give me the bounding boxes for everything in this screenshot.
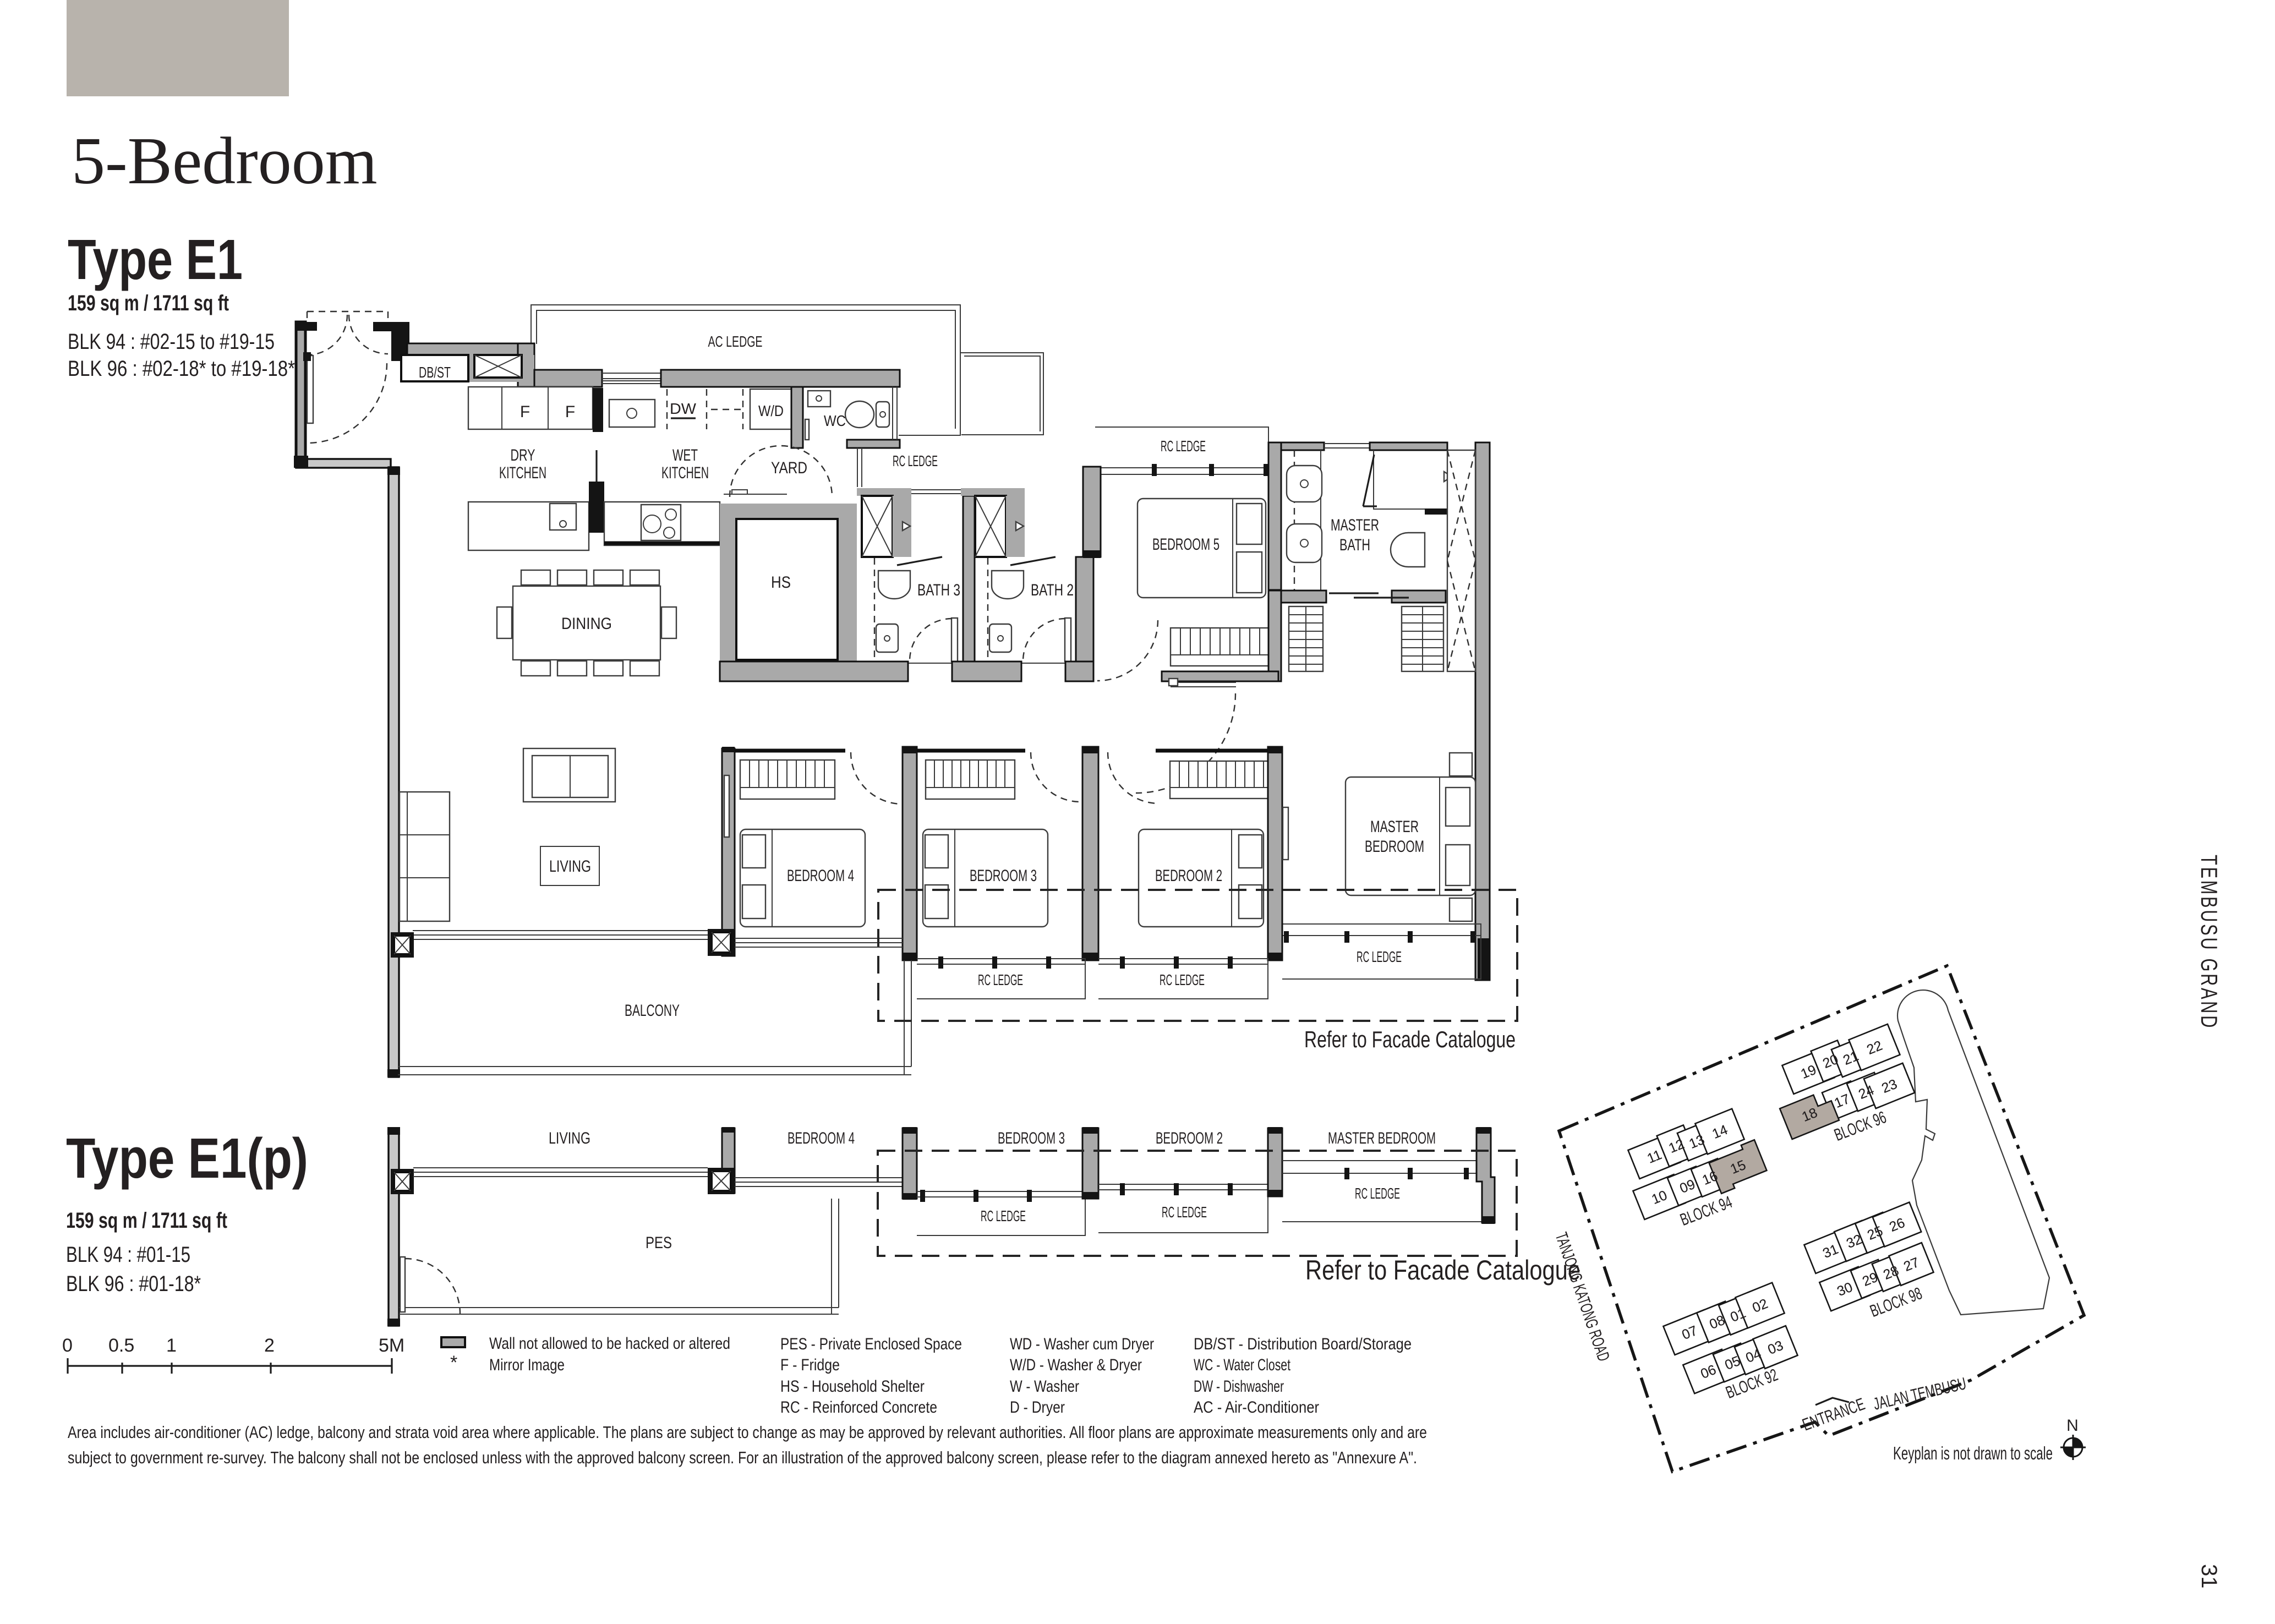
svg-text:RC LEDGE: RC LEDGE: [1160, 971, 1205, 988]
svg-text:MASTER: MASTER: [1331, 516, 1379, 534]
svg-text:BEDROOM: BEDROOM: [1365, 838, 1424, 856]
svg-text:subject to government re-surve: subject to government re-survey. The bal…: [68, 1448, 1417, 1467]
svg-text:AC - Air-Conditioner: AC - Air-Conditioner: [1194, 1398, 1319, 1417]
svg-text:WD - Washer cum Dryer: WD - Washer cum Dryer: [1010, 1335, 1154, 1353]
svg-text:JALAN TEMBUSU: JALAN TEMBUSU: [1872, 1374, 1968, 1414]
svg-text:F - Fridge: F - Fridge: [780, 1356, 840, 1374]
svg-text:31: 31: [2197, 1564, 2221, 1589]
svg-text:1: 1: [166, 1335, 177, 1356]
svg-text:0.5: 0.5: [108, 1335, 134, 1356]
svg-text:159 sq m / 1711 sq ft: 159 sq m / 1711 sq ft: [68, 291, 229, 315]
svg-text:DRY: DRY: [511, 446, 535, 464]
svg-text:Wall not allowed to be hacked: Wall not allowed to be hacked or altered: [489, 1335, 730, 1353]
svg-text:AC LEDGE: AC LEDGE: [708, 333, 763, 350]
svg-text:ENTRANCE: ENTRANCE: [1800, 1394, 1867, 1434]
svg-text:2: 2: [264, 1335, 275, 1356]
svg-text:HS: HS: [771, 573, 791, 592]
svg-text:DB/ST - Distribution Board/Sto: DB/ST - Distribution Board/Storage: [1194, 1335, 1412, 1353]
svg-text:LIVING: LIVING: [549, 1129, 590, 1147]
svg-text:N: N: [2066, 1417, 2079, 1435]
svg-text:BEDROOM 4: BEDROOM 4: [787, 1129, 855, 1147]
svg-text:MASTER: MASTER: [1370, 818, 1419, 836]
svg-text:RC LEDGE: RC LEDGE: [1161, 438, 1206, 455]
svg-text:RC LEDGE: RC LEDGE: [893, 452, 938, 469]
svg-text:KITCHEN: KITCHEN: [499, 464, 546, 482]
svg-text:BLK 96 : #01-18*: BLK 96 : #01-18*: [66, 1272, 201, 1296]
svg-text:HS - Household Shelter: HS - Household Shelter: [780, 1377, 925, 1396]
svg-text:W/D - Washer & Dryer: W/D - Washer & Dryer: [1010, 1356, 1142, 1374]
svg-text:RC - Reinforced Concrete: RC - Reinforced Concrete: [780, 1398, 937, 1417]
svg-text:BLK 94 : #02-15 to #19-15: BLK 94 : #02-15 to #19-15: [68, 330, 275, 354]
svg-text:BATH: BATH: [1339, 536, 1370, 554]
svg-text:BLK 94 : #01-15: BLK 94 : #01-15: [66, 1243, 190, 1267]
svg-text:DINING: DINING: [561, 615, 612, 633]
svg-text:BEDROOM 2: BEDROOM 2: [1156, 1129, 1223, 1147]
svg-text:RC LEDGE: RC LEDGE: [981, 1207, 1026, 1224]
svg-text:YARD: YARD: [771, 459, 807, 477]
svg-text:BATH 2: BATH 2: [1031, 581, 1074, 599]
svg-text:Mirror Image: Mirror Image: [489, 1356, 565, 1374]
svg-text:W - Washer: W - Washer: [1010, 1377, 1079, 1396]
svg-text:F: F: [520, 403, 530, 421]
svg-text:WET: WET: [672, 446, 698, 464]
svg-text:BALCONY: BALCONY: [625, 1002, 680, 1020]
svg-text:BEDROOM 4: BEDROOM 4: [787, 867, 854, 885]
svg-text:BATH 3: BATH 3: [917, 581, 960, 599]
svg-text:DW - Dishwasher: DW - Dishwasher: [1194, 1377, 1284, 1396]
svg-text:LIVING: LIVING: [549, 857, 591, 876]
svg-text:MASTER BEDROOM: MASTER BEDROOM: [1328, 1129, 1436, 1147]
svg-text:DW: DW: [670, 400, 697, 417]
svg-text:PES - Private Enclosed Space: PES - Private Enclosed Space: [780, 1335, 962, 1353]
svg-text:0: 0: [62, 1335, 73, 1356]
svg-text:BEDROOM 3: BEDROOM 3: [970, 867, 1037, 885]
svg-text:W/D: W/D: [758, 402, 784, 419]
svg-text:KITCHEN: KITCHEN: [661, 464, 709, 482]
svg-text:RC LEDGE: RC LEDGE: [1357, 948, 1402, 965]
svg-text:D - Dryer: D - Dryer: [1010, 1398, 1065, 1417]
svg-text:TEMBUSU GRAND: TEMBUSU GRAND: [2196, 855, 2222, 1030]
svg-text:RC LEDGE: RC LEDGE: [1162, 1204, 1207, 1221]
svg-text:PES: PES: [646, 1234, 672, 1252]
svg-text:159 sq m / 1711 sq ft: 159 sq m / 1711 sq ft: [66, 1209, 227, 1233]
svg-text:WC: WC: [824, 412, 846, 429]
svg-text:DB/ST: DB/ST: [419, 364, 451, 381]
svg-text:F: F: [565, 403, 575, 421]
svg-text:BLK 96 : #02-18* to #19-18*: BLK 96 : #02-18* to #19-18*: [68, 357, 295, 381]
svg-text:Type E1(p): Type E1(p): [66, 1127, 308, 1190]
svg-text:5M: 5M: [379, 1335, 404, 1356]
svg-text:BEDROOM 5: BEDROOM 5: [1152, 535, 1219, 554]
svg-text:WC - Water Closet: WC - Water Closet: [1194, 1356, 1290, 1374]
svg-text:BEDROOM 2: BEDROOM 2: [1155, 867, 1222, 885]
svg-text:Area includes air-conditioner: Area includes air-conditioner (AC) ledge…: [68, 1423, 1427, 1442]
svg-text:Type E1: Type E1: [68, 228, 243, 291]
svg-text:TANJONG KATONG ROAD: TANJONG KATONG ROAD: [1551, 1230, 1614, 1364]
svg-text:Refer to Facade Catalogue: Refer to Facade Catalogue: [1305, 1255, 1581, 1286]
svg-text:*: *: [450, 1352, 457, 1373]
svg-text:Refer to Facade Catalogue: Refer to Facade Catalogue: [1304, 1026, 1516, 1052]
svg-text:RC LEDGE: RC LEDGE: [1355, 1185, 1400, 1202]
svg-text:5-Bedroom: 5-Bedroom: [72, 124, 378, 198]
svg-text:RC LEDGE: RC LEDGE: [978, 971, 1023, 988]
svg-text:Keyplan is not drawn to scale: Keyplan is not drawn to scale: [1893, 1443, 2053, 1463]
svg-text:BEDROOM 3: BEDROOM 3: [998, 1129, 1065, 1147]
